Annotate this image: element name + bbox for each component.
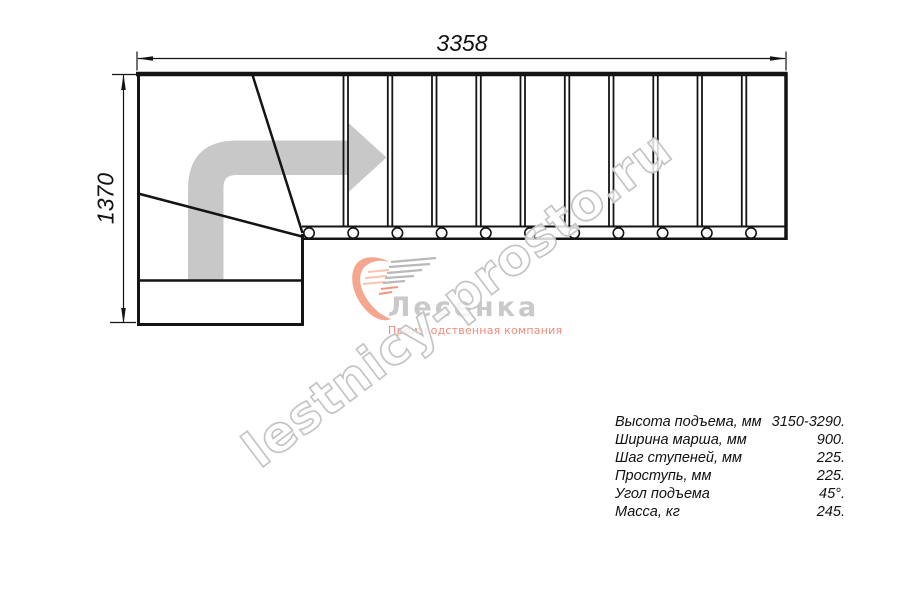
logo: Лесенка Производственная компания [345, 252, 560, 344]
top-dimension-label: 3358 [412, 30, 512, 57]
staircase-drawing-page: 3358 1370 Лесенка [0, 0, 900, 600]
spec-value: 225. [817, 449, 845, 467]
spec-label: Ширина марша, мм [615, 431, 747, 449]
brand-name: Лесенка [388, 292, 558, 323]
spec-label: Высота подъема, мм [615, 413, 762, 431]
flight-treads [344, 76, 747, 226]
logo-step-lines [383, 258, 436, 283]
spec-label: Масса, кг [615, 503, 680, 521]
spec-value: 3150-3290. [772, 413, 845, 431]
spec-value: 245. [817, 503, 845, 521]
spec-label: Угол подъема [615, 485, 710, 503]
left-dimension-label: 1370 [93, 149, 120, 249]
spec-row: Проступь, мм 225. [615, 467, 845, 485]
spec-row: Высота подъема, мм 3150-3290. [615, 413, 845, 431]
specs-table: Высота подъема, мм 3150-3290. Ширина мар… [615, 413, 845, 521]
spec-label: Проступь, мм [615, 467, 711, 485]
spec-row: Масса, кг 245. [615, 503, 845, 521]
spec-value: 900. [817, 431, 845, 449]
spec-row: Ширина марша, мм 900. [615, 431, 845, 449]
spec-value: 45°. [819, 485, 845, 503]
baluster-circles [304, 228, 756, 238]
brand-tagline: Производственная компания [388, 324, 560, 337]
spec-row: Шаг ступеней, мм 225. [615, 449, 845, 467]
spec-row: Угол подъема 45°. [615, 485, 845, 503]
spec-value: 225. [817, 467, 845, 485]
spec-label: Шаг ступеней, мм [615, 449, 742, 467]
